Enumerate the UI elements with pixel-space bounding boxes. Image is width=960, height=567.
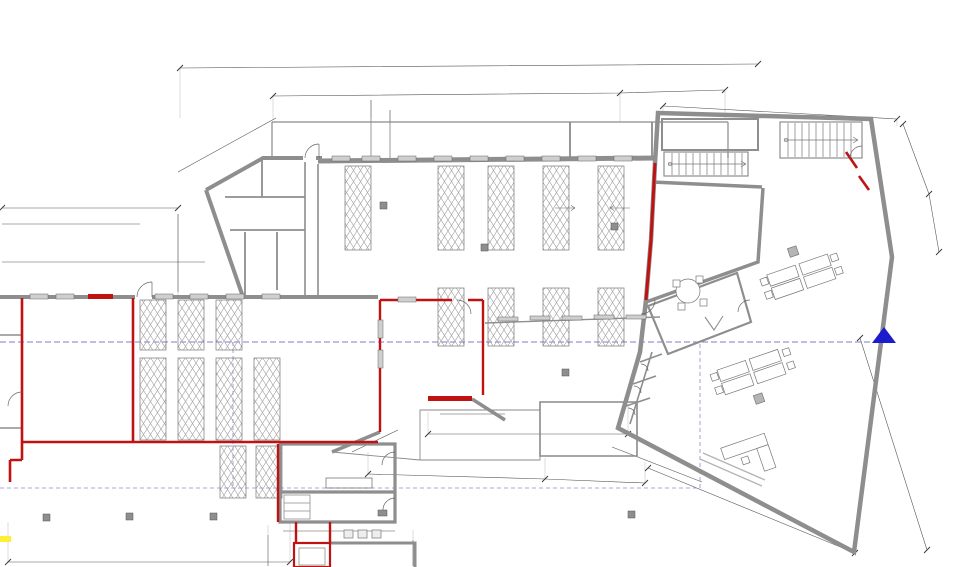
highlight-mark — [0, 536, 11, 542]
desk-cluster-a — [753, 234, 844, 302]
desk-cluster-b — [709, 346, 802, 416]
furniture — [344, 234, 844, 538]
section-marker-triangle — [872, 327, 896, 343]
floorplan-page — [0, 0, 960, 567]
floorplan-drawing — [0, 0, 960, 567]
reception-desk — [721, 433, 776, 482]
